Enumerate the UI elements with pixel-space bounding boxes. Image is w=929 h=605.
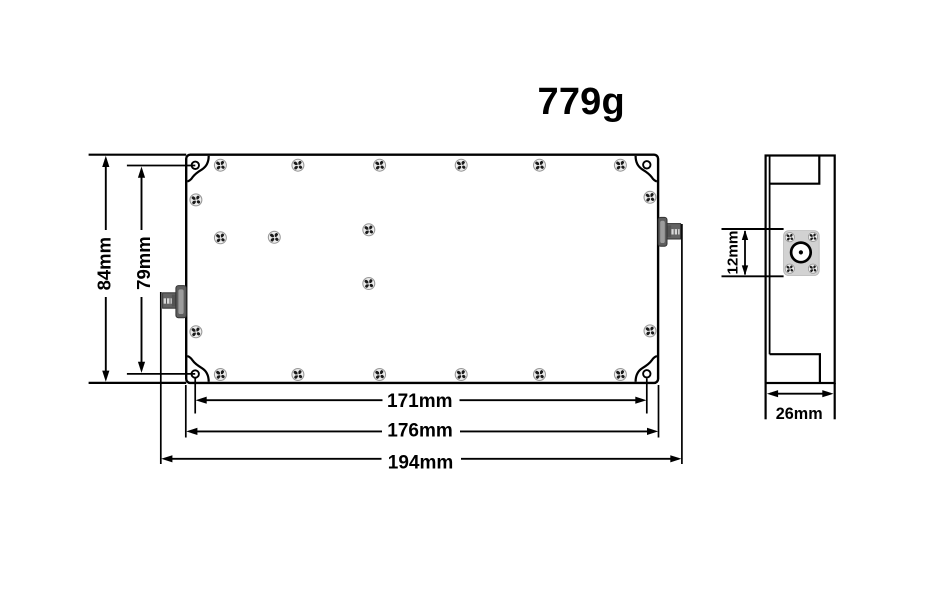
svg-text:176mm: 176mm bbox=[387, 420, 453, 441]
svg-text:171mm: 171mm bbox=[387, 391, 453, 412]
svg-text:194mm: 194mm bbox=[388, 452, 454, 473]
svg-text:79mm: 79mm bbox=[133, 236, 154, 289]
svg-text:779g: 779g bbox=[538, 81, 625, 123]
svg-text:12mm: 12mm bbox=[724, 231, 741, 275]
svg-text:26mm: 26mm bbox=[776, 405, 823, 423]
svg-text:84mm: 84mm bbox=[94, 237, 115, 290]
